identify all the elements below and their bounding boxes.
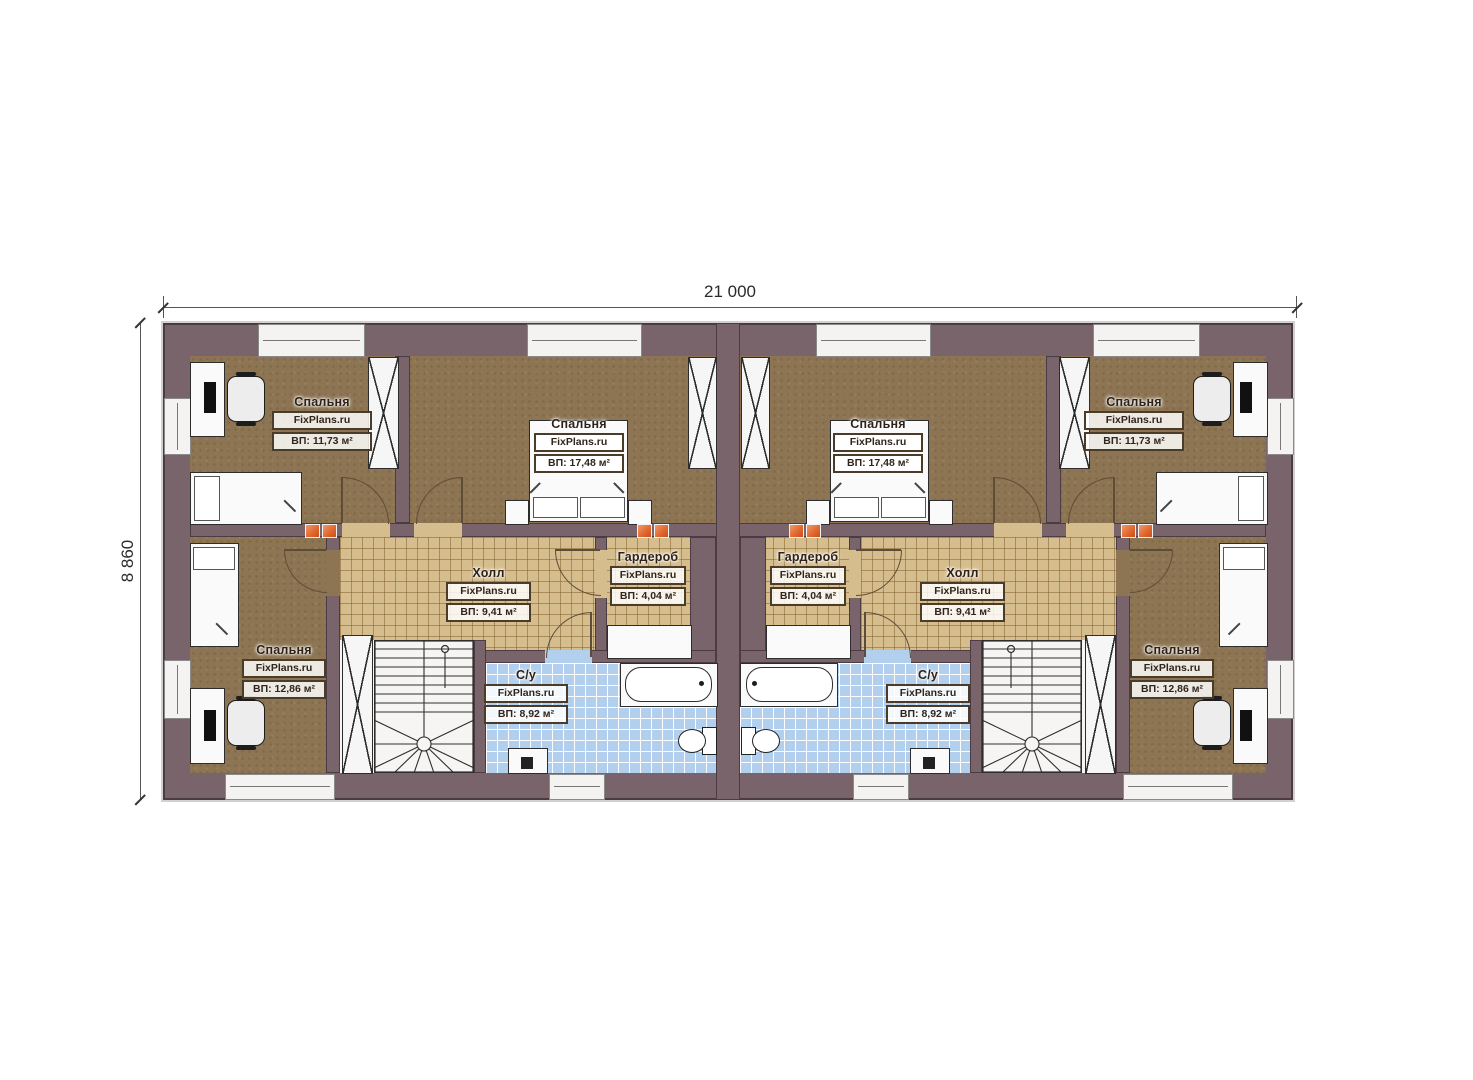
- floor-plan-canvas: 21 000 8 860: [0, 0, 1473, 1080]
- washing-machine-door: [923, 757, 935, 769]
- window: [1267, 660, 1294, 719]
- room-area: ВП: 11,73 м²: [272, 432, 372, 451]
- staircase-right: [982, 640, 1082, 773]
- room-area: ВП: 8,92 м²: [484, 705, 568, 724]
- door-opening: [994, 523, 1042, 537]
- window: [1093, 324, 1200, 357]
- door-opening: [414, 523, 462, 537]
- window: [1267, 398, 1294, 455]
- nightstand: [628, 500, 652, 525]
- nightstand: [806, 500, 830, 525]
- toilet: [678, 729, 706, 753]
- room-name: С/у: [516, 668, 536, 682]
- room-name: Спальня: [1106, 395, 1161, 409]
- wardrobe-cabinet: [688, 357, 717, 469]
- vent-block: [806, 524, 821, 538]
- room-watermark: FixPlans.ru: [1084, 411, 1184, 430]
- room-label-bathroom-right: С/у FixPlans.ru ВП: 8,92 м²: [886, 668, 970, 724]
- computer-monitor: [1240, 710, 1252, 741]
- room-name: С/у: [918, 668, 938, 682]
- room-name: Гардероб: [618, 550, 679, 564]
- window: [164, 398, 191, 455]
- window: [527, 324, 642, 357]
- window: [549, 774, 605, 800]
- room-watermark: FixPlans.ru: [242, 659, 326, 678]
- wardrobe-cabinet: [368, 357, 399, 469]
- wardrobe-cabinet: [1085, 635, 1116, 774]
- wall-stair-bath-right: [970, 640, 982, 773]
- room-watermark: FixPlans.ru: [920, 582, 1005, 601]
- room-label-hall-right: Холл FixPlans.ru ВП: 9,41 м²: [920, 566, 1005, 622]
- room-label-bedroom-bottom-right: Спальня FixPlans.ru ВП: 12,86 м²: [1130, 643, 1214, 699]
- vent-block: [654, 524, 669, 538]
- wall-shaft-right: [740, 537, 766, 663]
- toilet: [752, 729, 780, 753]
- closet-unit: [607, 625, 692, 659]
- closet-unit: [766, 625, 851, 659]
- dimension-width-label: 21 000: [163, 282, 1297, 302]
- office-chair: [227, 376, 265, 422]
- pillow: [881, 497, 926, 518]
- faucet: [752, 681, 757, 686]
- office-chair: [1193, 376, 1231, 422]
- room-name: Холл: [946, 566, 978, 580]
- pillow: [1238, 476, 1264, 521]
- room-label-wardrobe-right: Гардероб FixPlans.ru ВП: 4,04 м²: [770, 550, 846, 606]
- bathtub-basin: [746, 667, 833, 702]
- room-area: ВП: 17,48 м²: [534, 454, 624, 473]
- room-watermark: FixPlans.ru: [272, 411, 372, 430]
- vent-block: [322, 524, 337, 538]
- room-label-bedroom-top-left: Спальня FixPlans.ru ВП: 11,73 м²: [272, 395, 372, 451]
- room-name: Спальня: [551, 417, 606, 431]
- pillow: [194, 476, 220, 521]
- computer-monitor: [204, 710, 216, 741]
- window: [258, 324, 365, 357]
- room-area: ВП: 12,86 м²: [1130, 680, 1214, 699]
- room-watermark: FixPlans.ru: [886, 684, 970, 703]
- window: [816, 324, 931, 357]
- room-label-bedroom-center-right: Спальня FixPlans.ru ВП: 17,48 м²: [833, 417, 923, 473]
- wall-center-divider: [716, 323, 740, 800]
- office-chair: [1193, 700, 1231, 746]
- room-name: Спальня: [256, 643, 311, 657]
- room-area: ВП: 4,04 м²: [610, 587, 686, 606]
- door-opening: [1066, 523, 1114, 537]
- room-name: Спальня: [850, 417, 905, 431]
- room-area: ВП: 12,86 м²: [242, 680, 326, 699]
- room-watermark: FixPlans.ru: [833, 433, 923, 452]
- window: [853, 774, 909, 800]
- door-opening: [1116, 550, 1130, 596]
- room-name: Холл: [472, 566, 504, 580]
- pillow: [834, 497, 879, 518]
- room-label-wardrobe-left: Гардероб FixPlans.ru ВП: 4,04 м²: [610, 550, 686, 606]
- wardrobe-cabinet: [741, 357, 770, 469]
- vent-block: [1138, 524, 1153, 538]
- room-watermark: FixPlans.ru: [770, 566, 846, 585]
- room-label-bedroom-top-right: Спальня FixPlans.ru ВП: 11,73 м²: [1084, 395, 1184, 451]
- pillow: [193, 547, 235, 570]
- room-name: Спальня: [1144, 643, 1199, 657]
- room-watermark: FixPlans.ru: [534, 433, 624, 452]
- pillow: [580, 497, 625, 518]
- room-watermark: FixPlans.ru: [610, 566, 686, 585]
- room-watermark: FixPlans.ru: [484, 684, 568, 703]
- room-name: Гардероб: [778, 550, 839, 564]
- window: [1123, 774, 1233, 800]
- faucet: [699, 681, 704, 686]
- nightstand: [929, 500, 953, 525]
- room-label-bedroom-bottom-left: Спальня FixPlans.ru ВП: 12,86 м²: [242, 643, 326, 699]
- pillow: [1223, 547, 1265, 570]
- nightstand: [505, 500, 529, 525]
- pillow: [533, 497, 578, 518]
- window: [164, 660, 191, 719]
- room-area: ВП: 9,41 м²: [920, 603, 1005, 622]
- room-label-bedroom-center-left: Спальня FixPlans.ru ВП: 17,48 м²: [534, 417, 624, 473]
- room-label-hall-left: Холл FixPlans.ru ВП: 9,41 м²: [446, 566, 531, 622]
- room-area: ВП: 8,92 м²: [886, 705, 970, 724]
- wall-shaft-left: [690, 537, 716, 663]
- wardrobe-cabinet: [342, 635, 373, 774]
- dimension-height-label: 8 860: [118, 516, 138, 606]
- staircase-left: [374, 640, 474, 773]
- office-chair: [227, 700, 265, 746]
- computer-monitor: [1240, 382, 1252, 413]
- vent-block: [305, 524, 320, 538]
- vent-block: [637, 524, 652, 538]
- dimension-width-line: [163, 307, 1297, 308]
- washing-machine-door: [521, 757, 533, 769]
- room-area: ВП: 11,73 м²: [1084, 432, 1184, 451]
- window: [225, 774, 335, 800]
- room-area: ВП: 17,48 м²: [833, 454, 923, 473]
- door-opening: [326, 550, 340, 596]
- computer-monitor: [204, 382, 216, 413]
- door-opening: [342, 523, 390, 537]
- dimension-height-line: [140, 323, 141, 800]
- room-label-bathroom-left: С/у FixPlans.ru ВП: 8,92 м²: [484, 668, 568, 724]
- room-name: Спальня: [294, 395, 349, 409]
- room-area: ВП: 9,41 м²: [446, 603, 531, 622]
- room-watermark: FixPlans.ru: [1130, 659, 1214, 678]
- vent-block: [789, 524, 804, 538]
- vent-block: [1121, 524, 1136, 538]
- room-watermark: FixPlans.ru: [446, 582, 531, 601]
- room-area: ВП: 4,04 м²: [770, 587, 846, 606]
